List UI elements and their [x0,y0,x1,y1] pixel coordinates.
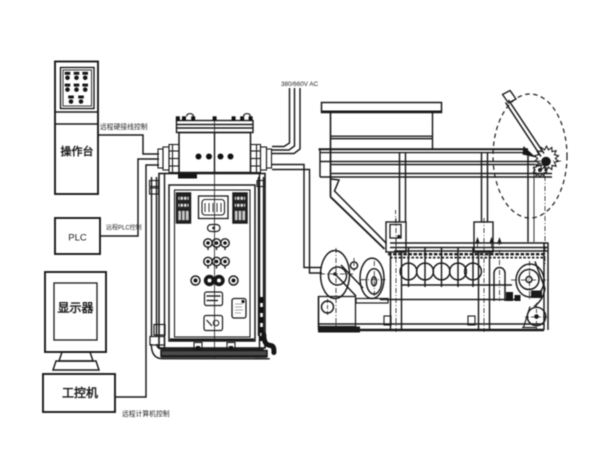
svg-text:显示器: 显示器 [57,301,94,315]
svg-text:380/660V AC: 380/660V AC [281,81,319,88]
svg-text:远程硬接线控制: 远程硬接线控制 [100,122,148,131]
svg-text:PLC: PLC [68,233,87,244]
svg-text:远程PLC控制: 远程PLC控制 [106,224,142,232]
svg-text:工控机: 工控机 [62,385,98,400]
svg-text:操作台: 操作台 [61,144,94,158]
svg-text:远程计算机控制: 远程计算机控制 [122,409,170,418]
